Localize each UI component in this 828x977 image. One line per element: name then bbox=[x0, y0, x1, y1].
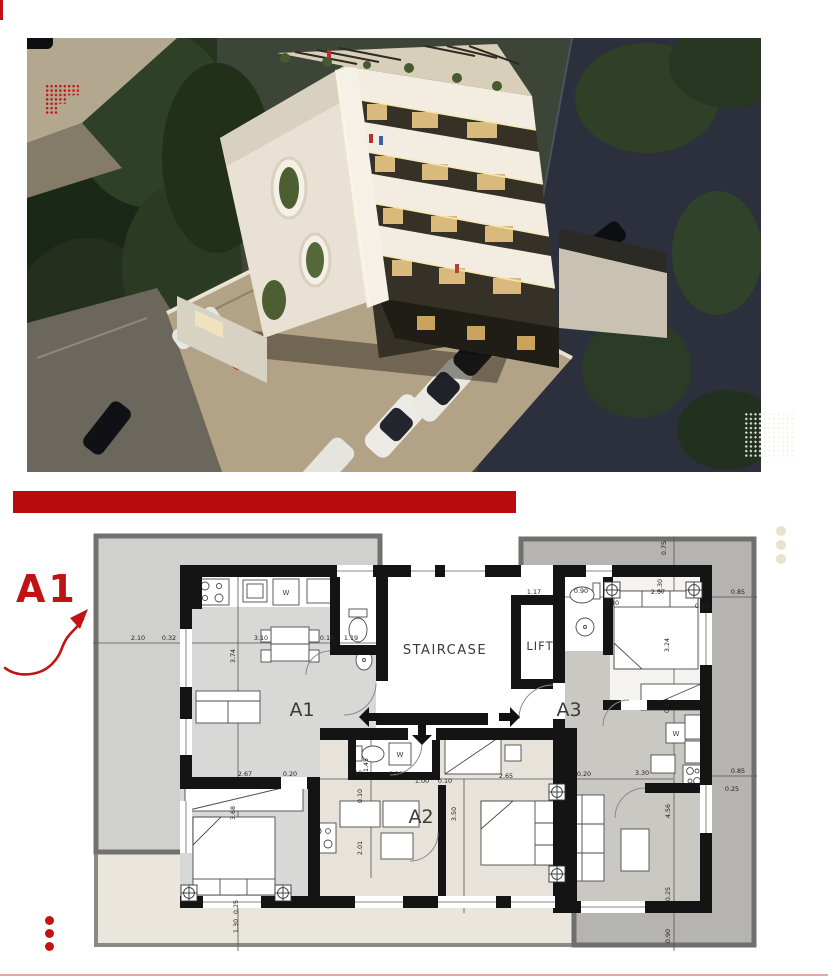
dim-label: 0.85 bbox=[731, 767, 745, 775]
dim-label: 0.10 bbox=[438, 777, 452, 785]
washer-label: W bbox=[283, 589, 290, 597]
room-label-a2: A2 bbox=[408, 806, 433, 828]
dim-label: 2.10 bbox=[131, 634, 145, 642]
dim-label: 2.01 bbox=[356, 841, 364, 855]
dim-label: 2.10 bbox=[348, 769, 362, 777]
white-dots-ornament bbox=[744, 412, 796, 458]
dim-label: 0.25 bbox=[232, 900, 240, 914]
dim-label: 0.25 bbox=[725, 785, 739, 793]
dim-label: 0.10 bbox=[320, 634, 334, 642]
dim-label: 3.50 bbox=[450, 807, 458, 821]
dim-label: 1.45 bbox=[362, 758, 370, 772]
room-label-a3: A3 bbox=[556, 699, 581, 721]
dim-label: 0.10 bbox=[663, 699, 671, 713]
beige-dot bbox=[776, 526, 786, 536]
dim-label: 0.90 bbox=[574, 587, 588, 595]
callout-arrow-icon bbox=[0, 598, 100, 676]
beige-dot bbox=[776, 540, 786, 550]
dim-label: 0.10 bbox=[605, 599, 619, 607]
dim-label: 3.24 bbox=[663, 638, 671, 652]
page-bottom-accent-line bbox=[0, 974, 828, 976]
dim-label: 3.30 bbox=[635, 769, 649, 777]
dim-label: 0.75 bbox=[660, 541, 668, 555]
dim-label: 1.00 bbox=[415, 777, 429, 785]
dim-label: 0.20 bbox=[283, 770, 297, 778]
washer-label: W bbox=[397, 751, 404, 759]
dim-label: 0.20 bbox=[577, 770, 591, 778]
dim-label: 3.10 bbox=[254, 634, 268, 642]
building-render-photo bbox=[27, 38, 761, 472]
room-label-a1: A1 bbox=[289, 699, 314, 721]
dim-label: 1.17 bbox=[527, 588, 541, 596]
red-dot bbox=[45, 916, 54, 925]
red-dots-ornament bbox=[45, 916, 54, 951]
dim-label: 1.30 bbox=[232, 919, 240, 933]
red-dot bbox=[45, 929, 54, 938]
dim-label: 0.90 bbox=[664, 929, 672, 943]
room-label-staircase: STAIRCASE bbox=[403, 643, 487, 658]
room-label-lift: LIFT bbox=[526, 639, 553, 653]
red-dot bbox=[45, 942, 54, 951]
dim-label: 2.65 bbox=[499, 772, 513, 780]
dim-label: 0.10 bbox=[389, 770, 403, 778]
beige-dot bbox=[776, 554, 786, 564]
brochure-page: A1 bbox=[0, 0, 828, 977]
dim-label: 1.19 bbox=[344, 634, 358, 642]
page-edge-accent bbox=[0, 0, 3, 20]
washer-label: W bbox=[673, 730, 680, 738]
dim-label: 0.25 bbox=[664, 887, 672, 901]
dim-label: 2.30 bbox=[656, 579, 664, 593]
dim-label: 3.68 bbox=[229, 806, 237, 820]
beige-dots-ornament bbox=[776, 526, 786, 564]
floor-plan: STAIRCASE LIFT A1 A3 A2 W W W 2.10 0.32 … bbox=[93, 533, 757, 954]
section-divider-bar bbox=[13, 491, 516, 513]
dim-label: 0.85 bbox=[731, 588, 745, 596]
dim-label: 3.74 bbox=[229, 649, 237, 663]
dim-label: 0.32 bbox=[162, 634, 176, 642]
dim-label: 4.56 bbox=[664, 804, 672, 818]
dim-label: 2.67 bbox=[238, 770, 252, 778]
dim-label: 0.25 bbox=[695, 602, 709, 610]
dim-label: 0.10 bbox=[356, 789, 364, 803]
